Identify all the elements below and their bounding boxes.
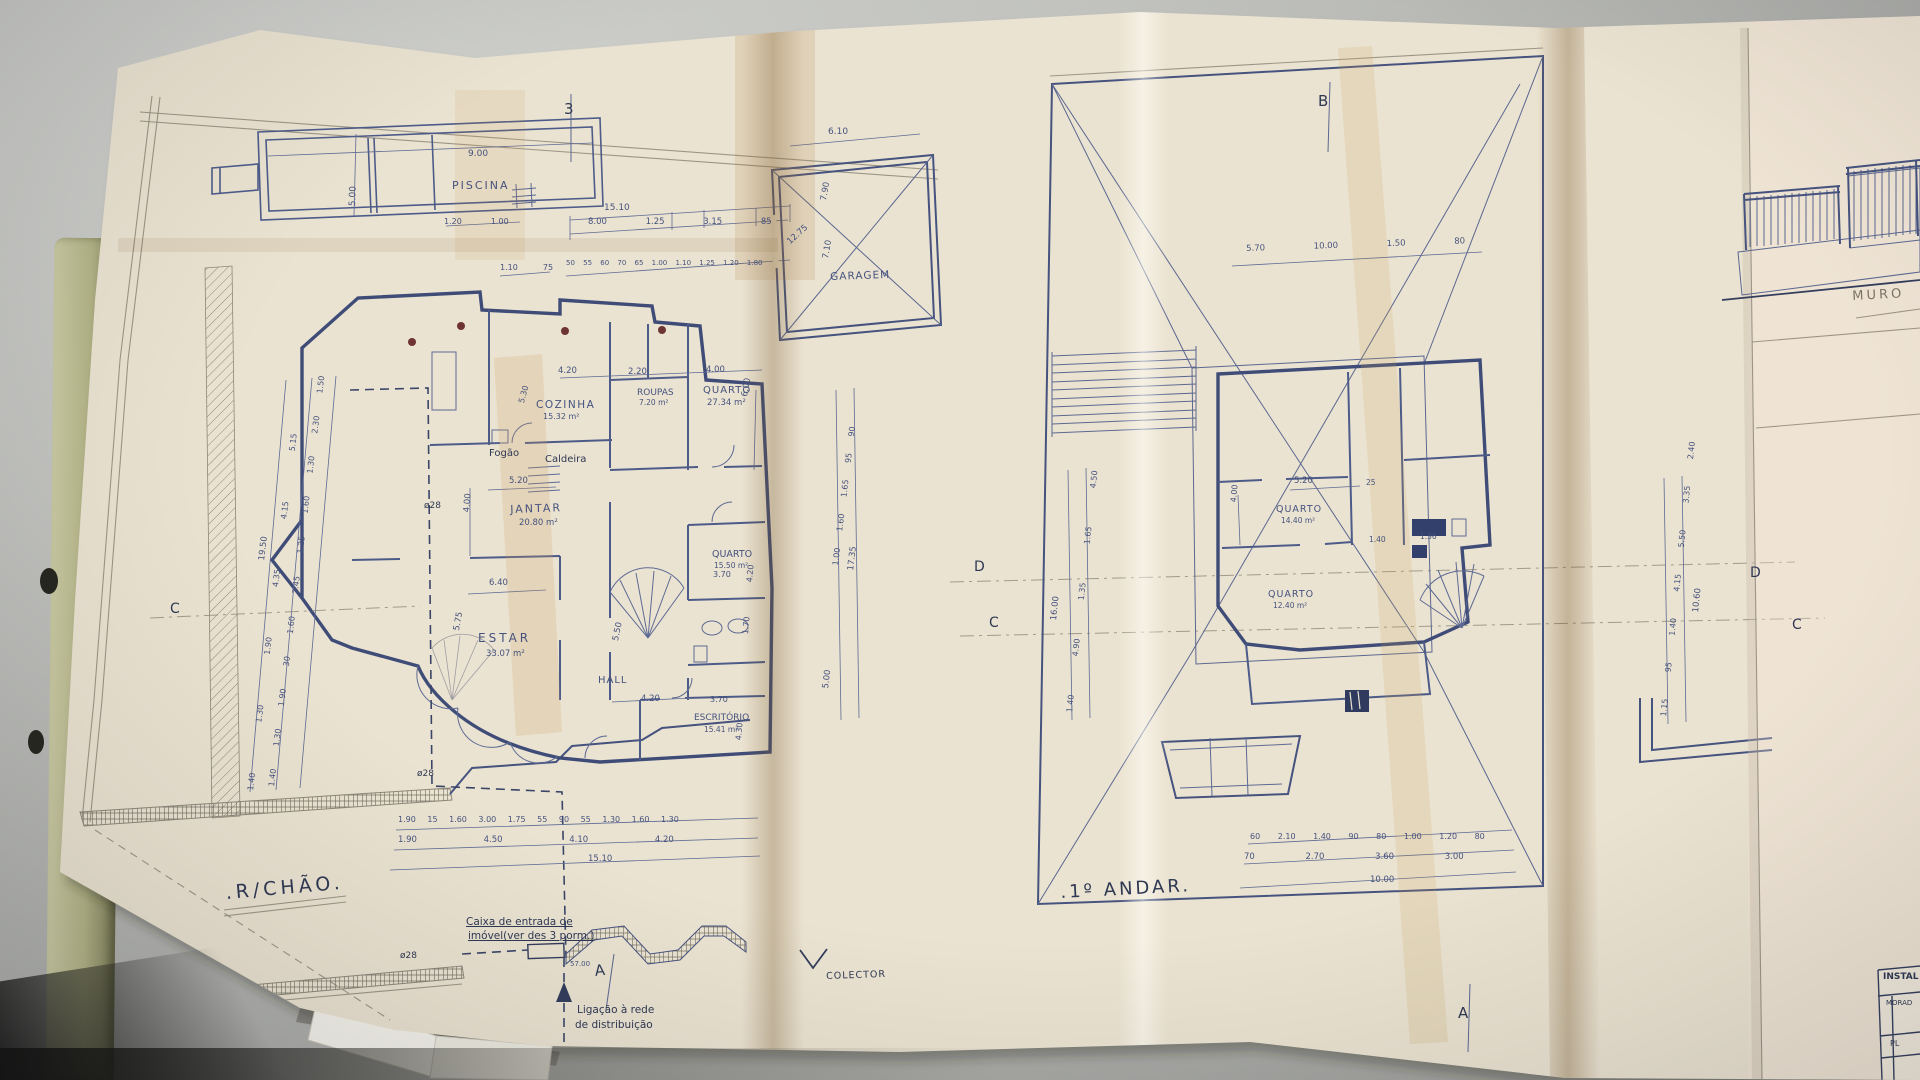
dim-chain: 1.20 1.00 <box>444 218 509 226</box>
dim: 4.20 <box>558 367 577 376</box>
dim: 3.70 <box>713 571 731 579</box>
dim-chain: 1.90 4.50 4.10 4.20 <box>398 836 674 845</box>
dim: 1.36 <box>1420 533 1437 541</box>
room-area: 27.34 m² <box>707 399 746 408</box>
room-label-quarto: QUARTO <box>1276 505 1322 515</box>
dim: 5.20 <box>509 477 528 486</box>
room-label-piscina: PISCINA <box>452 180 510 191</box>
note-ligacao-line2: de distribuição <box>575 1020 653 1031</box>
dim: 6.40 <box>489 579 508 588</box>
dim: 25 <box>1366 479 1376 487</box>
titleblock-line2: MORAD <box>1886 1000 1912 1007</box>
dim: 4.20 <box>641 695 660 704</box>
dim: 15.10 <box>604 204 630 213</box>
room-area: 15.50 m² <box>714 562 748 570</box>
room-label-roupas: ROUPAS <box>637 389 674 398</box>
titleblock-line3: PL <box>1890 1040 1899 1048</box>
label-muro: MURO <box>1852 287 1905 303</box>
paper <box>60 12 1920 1080</box>
pipe-label: ø28 <box>417 770 434 779</box>
dim: 4.20 <box>746 564 756 582</box>
dim: 6.10 <box>828 128 848 137</box>
dim: 5.20 <box>1294 477 1313 486</box>
section-marker-3: 3 <box>564 102 574 117</box>
blueprint-photo: PISCINA 9.00 5.00 1.20 1.00 1.10 75 15.1… <box>0 0 1920 1080</box>
section-marker-a: A <box>1458 1006 1468 1021</box>
dim: 4.00 <box>463 493 473 513</box>
pipe-label: ø28 <box>424 502 441 511</box>
section-marker-d: D <box>974 560 985 574</box>
dim: 4.30 <box>735 722 745 740</box>
dim: 16.00 <box>1050 596 1061 621</box>
dim: 3.70 <box>710 696 728 704</box>
dim-chain: 8.00 1.25 3.15 85 <box>588 218 772 227</box>
dim: 15.10 <box>588 855 612 864</box>
room-label-jantar: JANTAR <box>510 502 562 515</box>
dim: 4.00 <box>1230 484 1240 502</box>
note-colector: COLECTOR <box>826 970 886 982</box>
label-caldeira: Caldeira <box>545 455 586 465</box>
dim-chain: 50 55 60 70 65 1.00 1.10 1.25 1.20 1.80 <box>566 260 763 267</box>
room-label-cozinha: COZINHA <box>536 400 595 411</box>
dim: 5.00 <box>349 186 359 206</box>
section-marker-c: C <box>989 616 999 630</box>
section-marker-c: C <box>170 602 180 616</box>
dim: 2.20 <box>628 368 647 377</box>
room-label-hall: HALL <box>598 676 628 686</box>
room-area: 33.07 m² <box>486 650 525 659</box>
dim: 1.70 <box>742 616 752 634</box>
section-marker-d: D <box>1750 566 1761 580</box>
dim-chain: 70 2.70 3.60 3.00 <box>1244 853 1464 862</box>
room-label-quarto: QUARTO <box>1268 590 1314 600</box>
label-fogao: Fogão <box>489 449 519 459</box>
room-area: 12.40 m² <box>1273 602 1307 610</box>
room-area: 15.41 m² <box>704 726 738 734</box>
desk-edge-shadow <box>0 1048 1000 1080</box>
section-marker-b: B <box>1318 94 1328 109</box>
room-area: 14.40 m² <box>1281 517 1315 525</box>
room-area: 15.32 m² <box>543 413 579 421</box>
titleblock-line1: INSTAL <box>1883 973 1919 982</box>
blueprint-drawing <box>0 0 1920 1080</box>
dim-chain: 1.10 75 <box>500 264 553 272</box>
room-label-garagem: GARAGEM <box>830 270 890 283</box>
detail-sheet <box>1722 0 1920 1080</box>
level-value: 57.00 <box>570 961 590 968</box>
room-area: 20.80 m² <box>519 519 558 528</box>
room-label-quarto: QUARTO <box>712 550 752 560</box>
dim: 10.60 <box>1692 588 1703 613</box>
dim: 4.00 <box>706 366 725 375</box>
note-ligacao-line1: Ligação à rede <box>577 1005 654 1016</box>
room-label-estar: ESTAR <box>478 632 531 644</box>
section-marker-c: C <box>1792 618 1802 632</box>
dim-chain: 1.90 15 1.60 3.00 1.75 55 90 55 1.30 1.6… <box>398 816 679 824</box>
dim: 5.00 <box>822 669 833 689</box>
dim: 1.40 <box>1369 536 1386 544</box>
dim: 10.00 <box>1370 876 1394 885</box>
dim-chain: 60 2.10 1.40 90 80 1.00 1.20 80 <box>1250 833 1485 841</box>
section-marker-a: A <box>594 963 606 979</box>
room-area: 7.20 m² <box>639 399 668 407</box>
dim: 9.00 <box>468 150 488 159</box>
